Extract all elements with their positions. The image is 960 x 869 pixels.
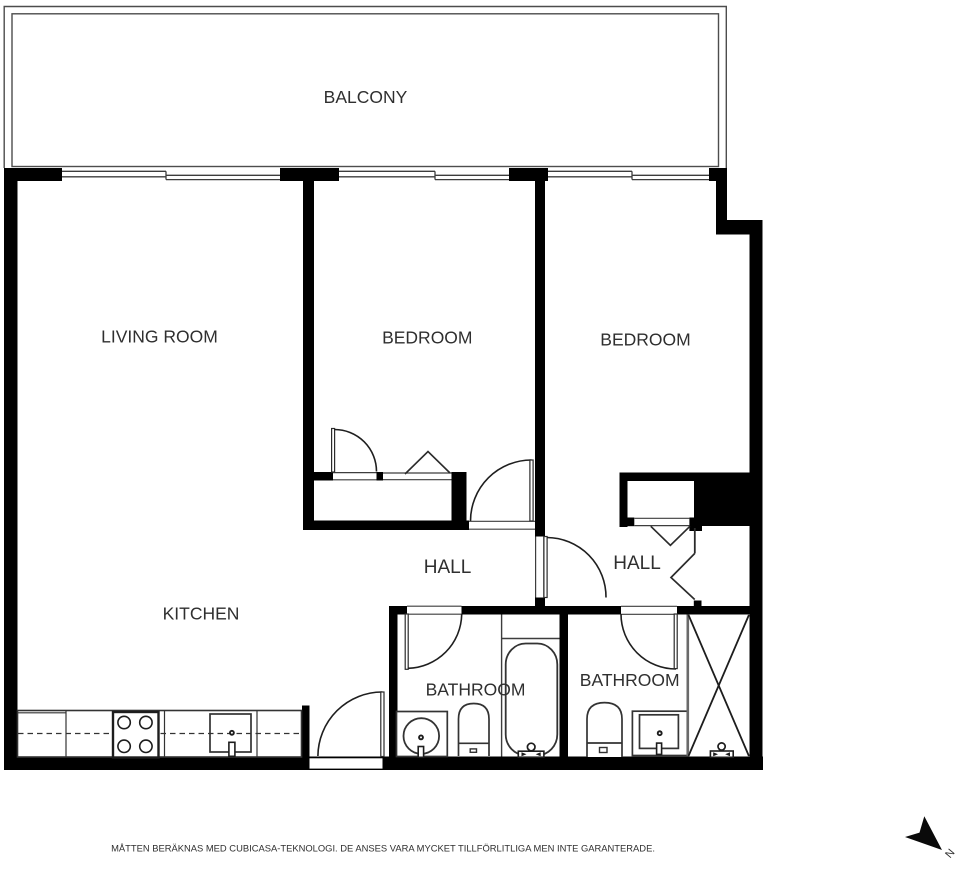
svg-text:HALL: HALL (424, 557, 472, 578)
svg-text:BATHROOM: BATHROOM (580, 670, 680, 690)
svg-text:HALL: HALL (613, 553, 661, 574)
svg-text:BATHROOM: BATHROOM (426, 680, 526, 700)
svg-text:BALCONY: BALCONY (324, 87, 408, 107)
svg-text:BEDROOM: BEDROOM (600, 330, 690, 350)
svg-text:BEDROOM: BEDROOM (382, 328, 472, 348)
svg-text:KITCHEN: KITCHEN (163, 603, 240, 623)
svg-text:MÅTTEN BERÄKNAS MED CUBICASA-T: MÅTTEN BERÄKNAS MED CUBICASA-TEKNOLOGI. … (111, 843, 655, 854)
svg-text:LIVING ROOM: LIVING ROOM (101, 327, 218, 347)
svg-text:N: N (943, 847, 957, 861)
